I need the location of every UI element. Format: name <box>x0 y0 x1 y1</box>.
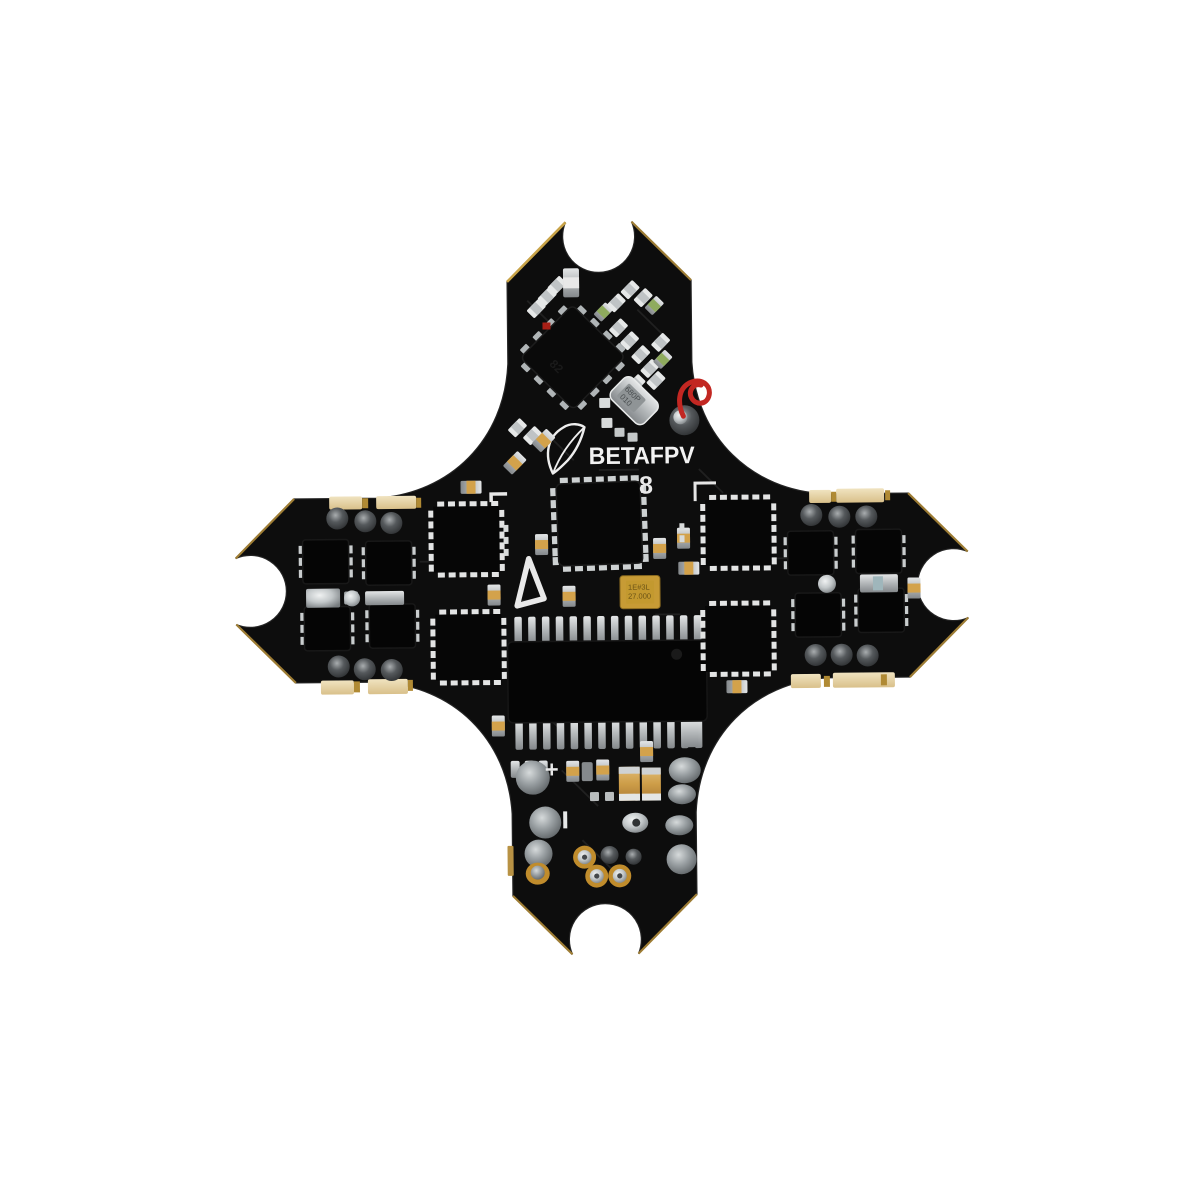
svg-text:27.000: 27.000 <box>628 592 651 601</box>
svg-text:8: 8 <box>639 472 653 500</box>
svg-text:1E#3L: 1E#3L <box>628 583 650 592</box>
svg-text:BETAFPV: BETAFPV <box>589 442 695 470</box>
